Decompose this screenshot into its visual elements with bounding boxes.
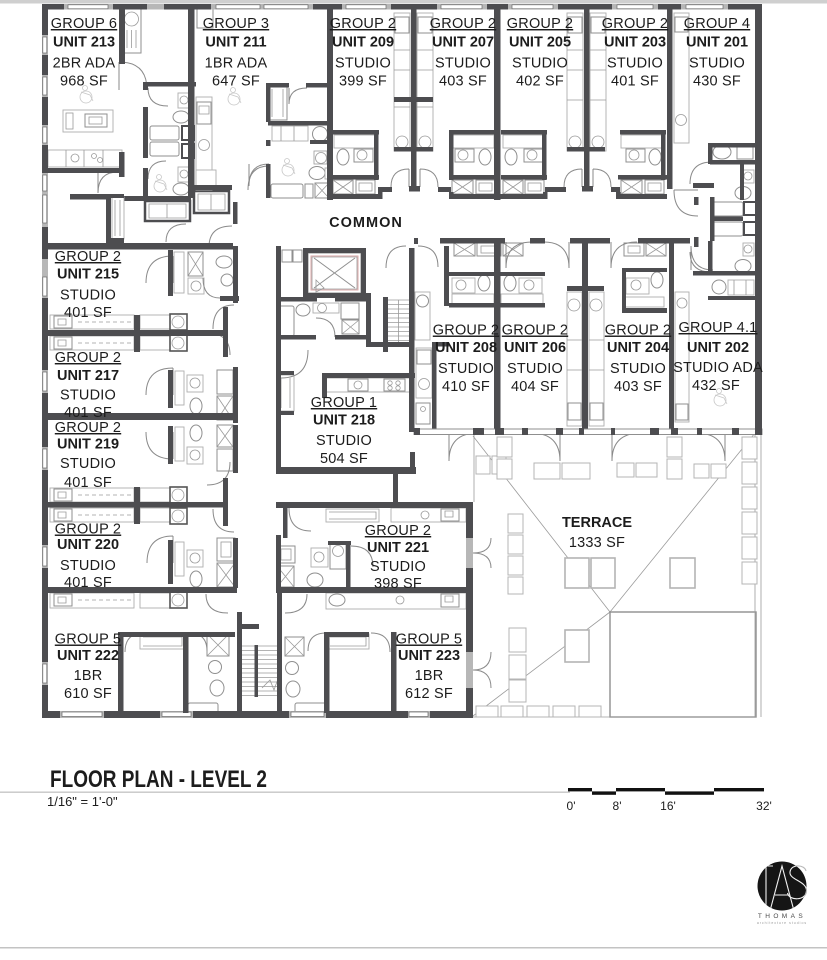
svg-text:STUDIO: STUDIO [335, 56, 391, 72]
svg-text:STUDIO: STUDIO [60, 456, 116, 472]
svg-text:COMMON: COMMON [329, 215, 403, 231]
svg-text:0': 0' [567, 799, 576, 813]
svg-text:403 SF: 403 SF [439, 74, 487, 90]
svg-text:1/16" = 1'-0": 1/16" = 1'-0" [47, 794, 118, 809]
svg-text:UNIT 205: UNIT 205 [509, 35, 571, 51]
svg-text:STUDIO: STUDIO [607, 56, 663, 72]
svg-text:UNIT 206: UNIT 206 [504, 340, 566, 356]
svg-text:647 SF: 647 SF [212, 74, 260, 90]
svg-text:968 SF: 968 SF [60, 74, 108, 90]
svg-text:1BR ADA: 1BR ADA [205, 56, 268, 72]
svg-text:STUDIO ADA: STUDIO ADA [673, 360, 763, 376]
svg-text:UNIT 207: UNIT 207 [432, 35, 494, 51]
svg-text:STUDIO: STUDIO [60, 558, 116, 574]
svg-text:401 SF: 401 SF [64, 305, 112, 321]
svg-text:STUDIO: STUDIO [438, 361, 494, 377]
svg-text:404 SF: 404 SF [511, 379, 559, 395]
svg-text:STUDIO: STUDIO [370, 559, 426, 575]
svg-text:FLOOR PLAN - LEVEL 2: FLOOR PLAN - LEVEL 2 [50, 766, 267, 793]
svg-text:430 SF: 430 SF [693, 74, 741, 90]
svg-text:612 SF: 612 SF [405, 686, 453, 702]
svg-text:STUDIO: STUDIO [60, 388, 116, 404]
svg-text:410 SF: 410 SF [442, 379, 490, 395]
svg-text:GROUP 2: GROUP 2 [365, 523, 431, 539]
svg-text:GROUP 2: GROUP 2 [430, 16, 496, 32]
svg-text:STUDIO: STUDIO [512, 56, 568, 72]
svg-text:GROUP 2: GROUP 2 [605, 323, 671, 339]
svg-text:403 SF: 403 SF [614, 379, 662, 395]
svg-text:STUDIO: STUDIO [60, 288, 116, 304]
svg-text:402 SF: 402 SF [516, 74, 564, 90]
svg-text:GROUP 2: GROUP 2 [55, 249, 121, 265]
svg-text:GROUP 2: GROUP 2 [330, 16, 396, 32]
svg-text:GROUP 4: GROUP 4 [684, 16, 750, 32]
svg-text:UNIT 221: UNIT 221 [367, 540, 429, 556]
svg-text:GROUP 1: GROUP 1 [311, 395, 377, 411]
svg-text:504 SF: 504 SF [320, 451, 368, 467]
svg-text:UNIT 217: UNIT 217 [57, 368, 119, 384]
svg-text:UNIT 222: UNIT 222 [57, 648, 119, 664]
svg-text:1BR: 1BR [415, 668, 444, 684]
svg-text:UNIT 202: UNIT 202 [687, 340, 749, 356]
svg-text:UNIT 204: UNIT 204 [607, 340, 669, 356]
svg-text:GROUP 2: GROUP 2 [55, 522, 121, 538]
svg-text:UNIT 209: UNIT 209 [332, 35, 394, 51]
svg-text:GROUP 5: GROUP 5 [55, 632, 121, 648]
svg-text:32': 32' [756, 799, 772, 813]
svg-text:UNIT 203: UNIT 203 [604, 35, 666, 51]
svg-text:STUDIO: STUDIO [610, 361, 666, 377]
svg-text:STUDIO: STUDIO [689, 56, 745, 72]
svg-text:GROUP 5: GROUP 5 [396, 632, 462, 648]
svg-text:432 SF: 432 SF [692, 378, 740, 394]
svg-text:UNIT 220: UNIT 220 [57, 537, 119, 553]
svg-text:GROUP 6: GROUP 6 [51, 16, 117, 32]
svg-text:STUDIO: STUDIO [435, 56, 491, 72]
svg-text:UNIT 213: UNIT 213 [53, 35, 115, 51]
svg-text:16': 16' [660, 799, 676, 813]
svg-text:610 SF: 610 SF [64, 686, 112, 702]
svg-text:UNIT 218: UNIT 218 [313, 413, 375, 429]
svg-text:UNIT 219: UNIT 219 [57, 437, 119, 453]
svg-text:401 SF: 401 SF [64, 405, 112, 421]
svg-text:2BR ADA: 2BR ADA [53, 56, 116, 72]
svg-text:TERRACE: TERRACE [562, 515, 632, 531]
svg-text:GROUP 2: GROUP 2 [55, 350, 121, 366]
svg-text:GROUP 2: GROUP 2 [502, 323, 568, 339]
svg-text:UNIT 201: UNIT 201 [686, 35, 748, 51]
svg-text:UNIT 211: UNIT 211 [205, 35, 266, 51]
svg-text:399 SF: 399 SF [339, 74, 387, 90]
svg-text:8': 8' [613, 799, 622, 813]
svg-text:GROUP 3: GROUP 3 [203, 16, 269, 32]
svg-text:1BR: 1BR [74, 668, 103, 684]
svg-text:GROUP 2: GROUP 2 [433, 323, 499, 339]
svg-text:GROUP 4.1: GROUP 4.1 [679, 320, 758, 336]
svg-text:401 SF: 401 SF [611, 74, 659, 90]
svg-text:GROUP 2: GROUP 2 [602, 16, 668, 32]
svg-text:GROUP 2: GROUP 2 [55, 420, 121, 436]
svg-text:401 SF: 401 SF [64, 575, 112, 591]
svg-text:STUDIO: STUDIO [507, 361, 563, 377]
svg-text:1333 SF: 1333 SF [569, 535, 625, 551]
svg-text:UNIT 215: UNIT 215 [57, 267, 119, 283]
svg-text:398 SF: 398 SF [374, 576, 422, 592]
svg-text:THOMAS: THOMAS [758, 913, 806, 920]
svg-text:architecture studios: architecture studios [757, 921, 807, 925]
svg-text:GROUP 2: GROUP 2 [507, 16, 573, 32]
svg-text:UNIT 208: UNIT 208 [435, 340, 497, 356]
svg-text:UNIT 223: UNIT 223 [398, 648, 460, 664]
svg-text:STUDIO: STUDIO [316, 433, 372, 449]
svg-text:401 SF: 401 SF [64, 475, 112, 491]
